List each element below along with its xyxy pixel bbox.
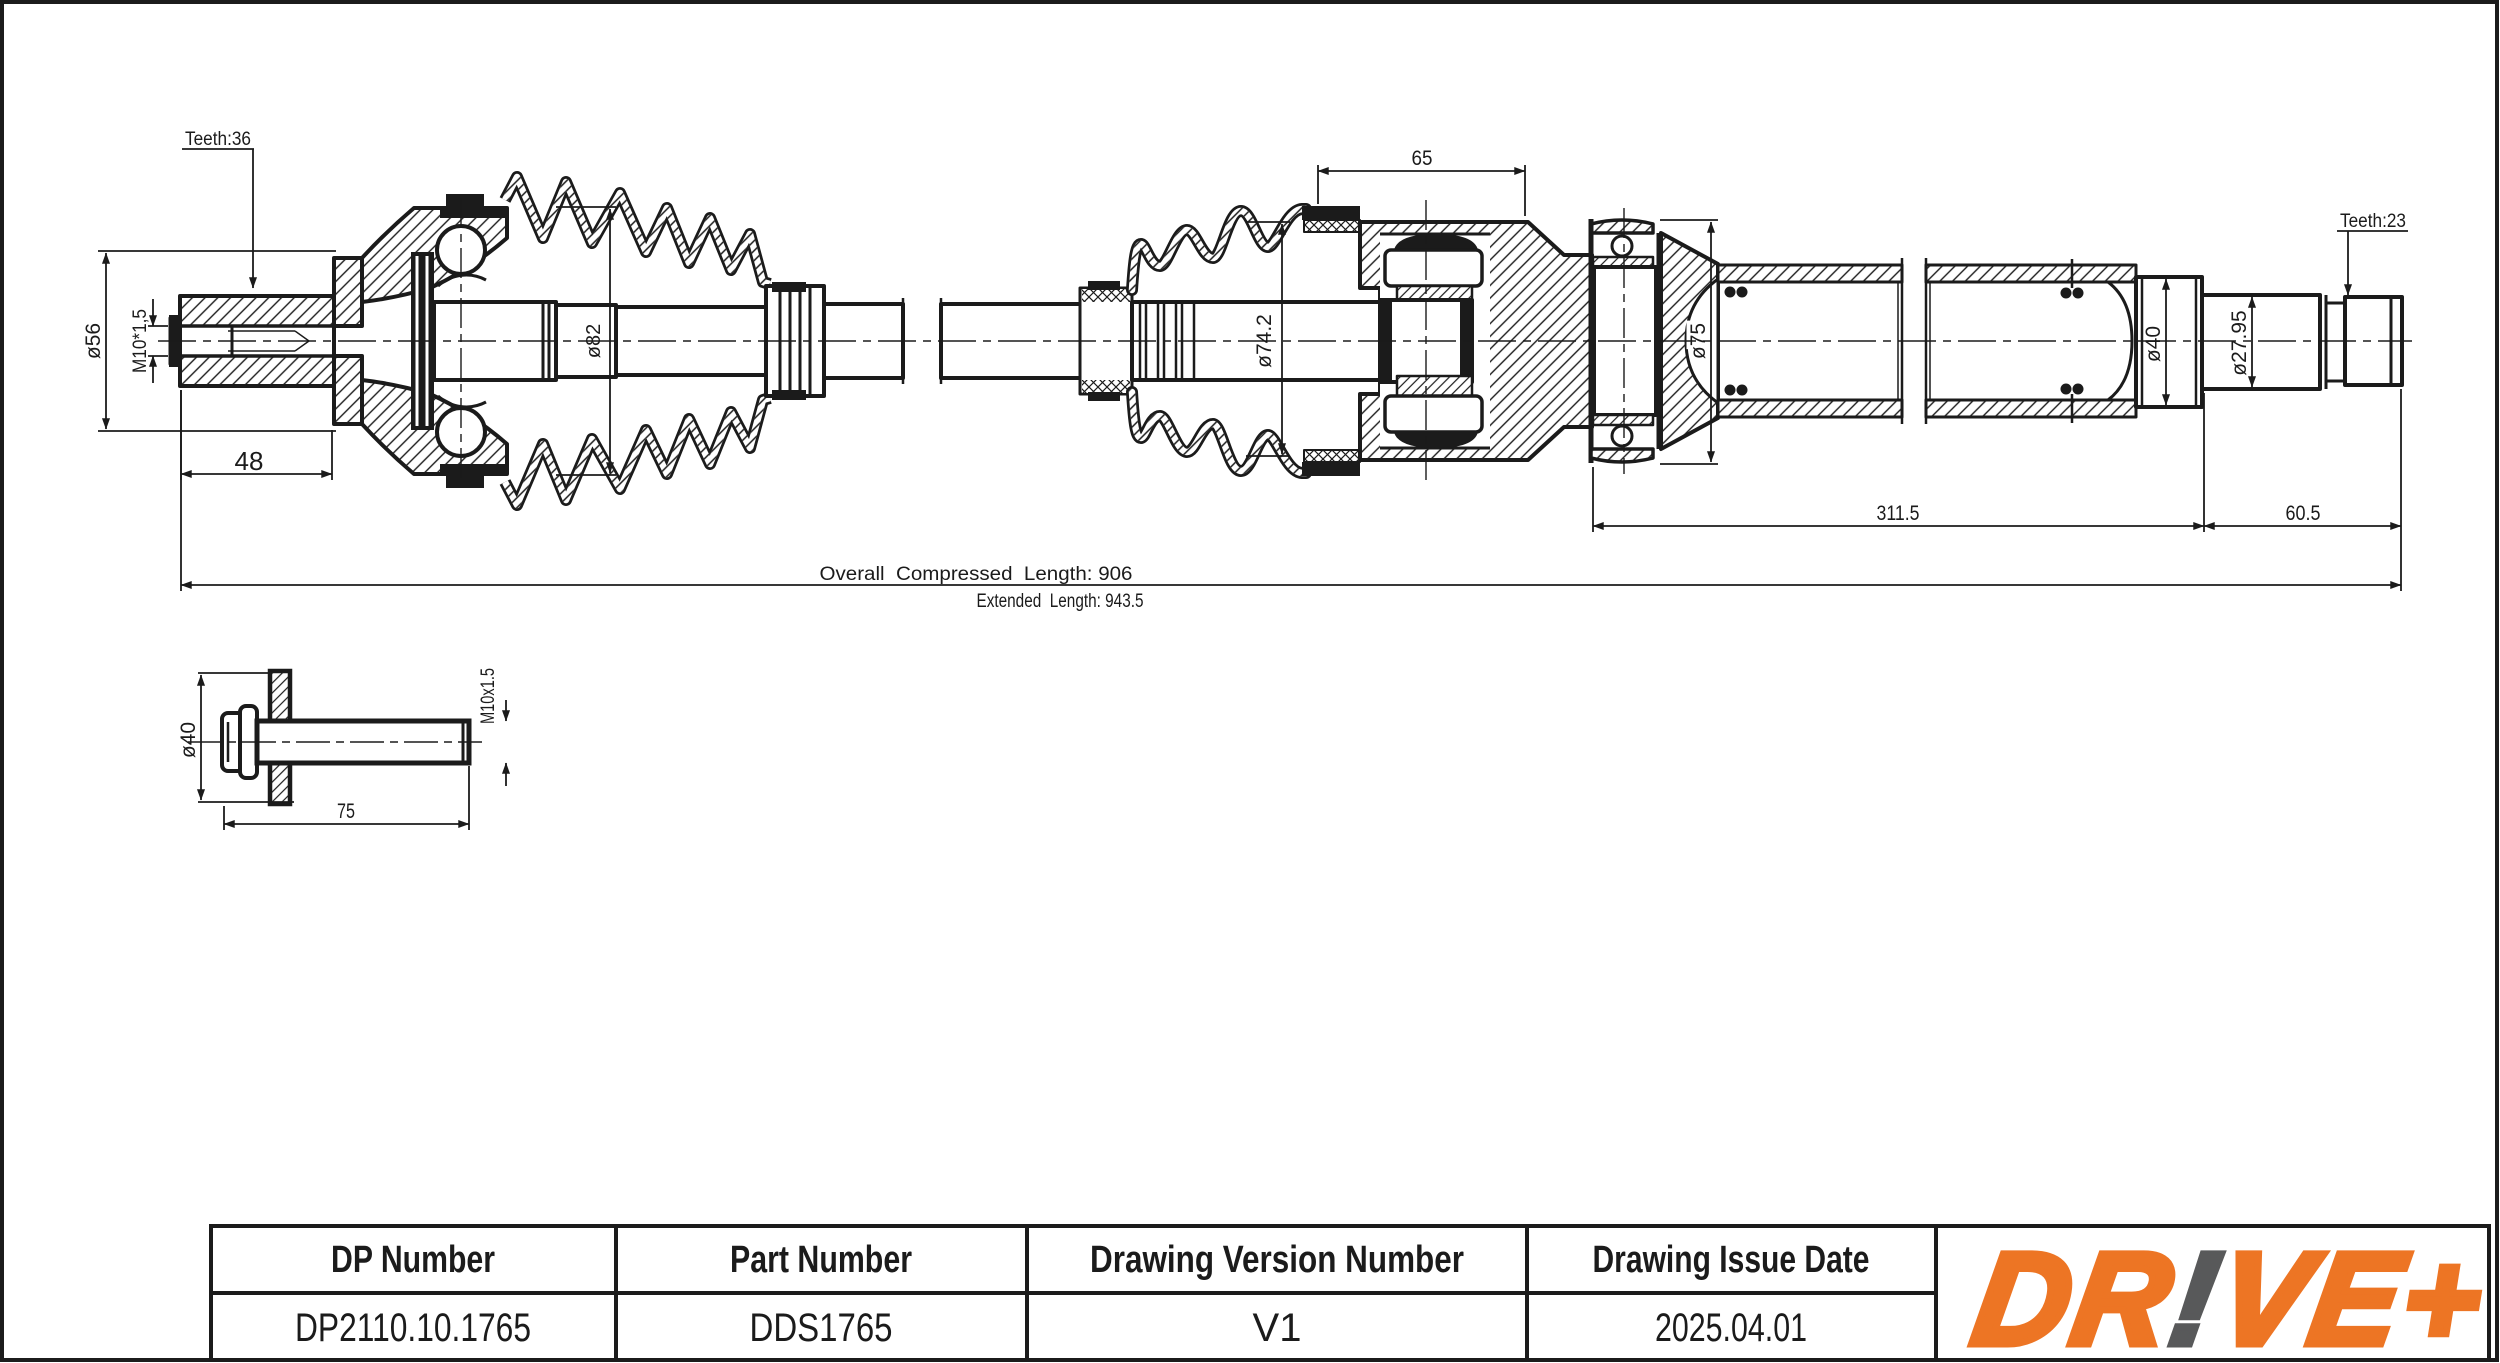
svg-text:V1: V1 xyxy=(1253,1306,1302,1350)
svg-text:DR!VE+: DR!VE+ xyxy=(1965,1226,2496,1363)
svg-text:65: 65 xyxy=(1412,147,1433,170)
svg-text:ø40: ø40 xyxy=(177,722,200,758)
svg-text:Drawing Issue Date: Drawing Issue Date xyxy=(1593,1239,1870,1281)
svg-text:75: 75 xyxy=(337,800,355,823)
svg-text:311.5: 311.5 xyxy=(1877,502,1920,525)
svg-text:ø56: ø56 xyxy=(82,323,105,359)
svg-text:ø27.95: ø27.95 xyxy=(2228,310,2251,375)
svg-text:2025.04.01: 2025.04.01 xyxy=(1655,1306,1807,1350)
svg-text:Drawing Version Number: Drawing Version Number xyxy=(1090,1239,1464,1281)
svg-text:48: 48 xyxy=(235,446,264,476)
svg-text:DP Number: DP Number xyxy=(331,1239,495,1281)
svg-text:DDS1765: DDS1765 xyxy=(750,1306,893,1350)
svg-text:Teeth:36: Teeth:36 xyxy=(185,129,251,150)
svg-text:Part Number: Part Number xyxy=(730,1239,912,1281)
svg-text:Overall Compressed Length: 9: Overall Compressed Length: 906 xyxy=(820,564,1133,585)
svg-text:Teeth:23: Teeth:23 xyxy=(2340,211,2406,232)
svg-text:ø40: ø40 xyxy=(2142,326,2165,362)
svg-text:DP2110.10.1765: DP2110.10.1765 xyxy=(295,1306,531,1350)
svg-text:Extended Length: 943.5: Extended Length: 943.5 xyxy=(977,591,1144,612)
svg-text:M10x1.5: M10x1.5 xyxy=(478,668,499,724)
svg-text:60.5: 60.5 xyxy=(2286,502,2321,525)
svg-text:M10*1,5: M10*1,5 xyxy=(130,309,151,373)
